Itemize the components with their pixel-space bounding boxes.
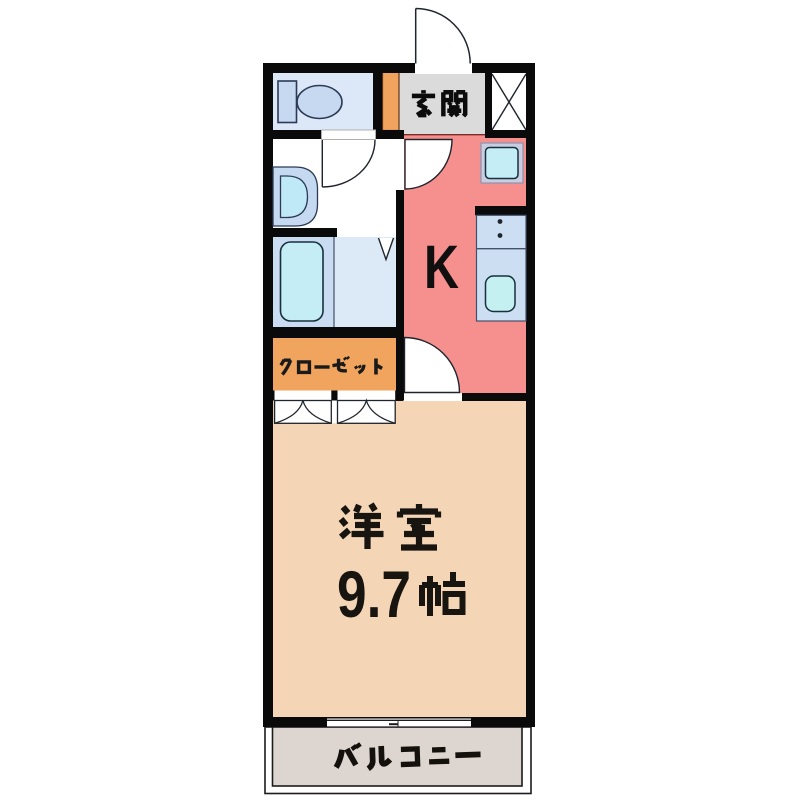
svg-text:K: K [424, 233, 459, 301]
svg-text:9.7: 9.7 [337, 557, 411, 631]
